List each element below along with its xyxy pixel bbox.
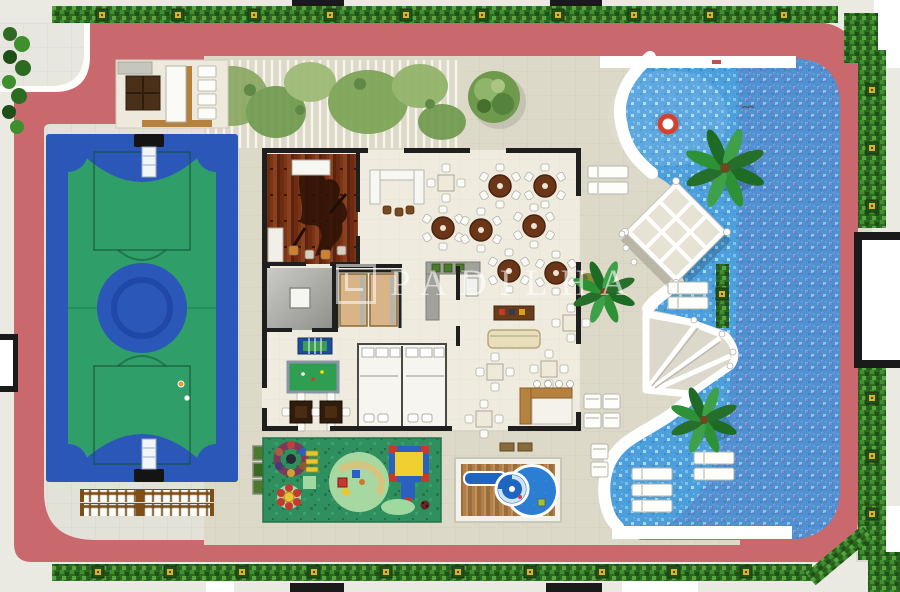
- carousel: [275, 441, 307, 477]
- pool-top-rim: [600, 56, 796, 68]
- pub-wood-lounge: [266, 154, 358, 264]
- pool-bottom-rim: [612, 526, 792, 539]
- right-notch: [854, 232, 900, 368]
- climbing-bars: [306, 451, 318, 472]
- life-ring: [656, 112, 680, 136]
- clubhouse-building: [262, 148, 590, 438]
- playground: [263, 438, 441, 522]
- foosball-table: [298, 338, 332, 354]
- floor-plan-drawing: [0, 0, 900, 592]
- play-circle: [329, 452, 389, 512]
- sports-court: [46, 134, 238, 482]
- grill-table: [126, 76, 160, 110]
- billiards-table: [288, 362, 338, 392]
- spiral-slide: [496, 473, 528, 505]
- ladybug-toy: [421, 501, 430, 510]
- fitness-room: [266, 268, 332, 330]
- floor-plan-canvas: PADILHA: [0, 0, 900, 592]
- grill-room: [116, 60, 228, 128]
- restrooms: [358, 344, 446, 428]
- left-notch: [0, 334, 18, 392]
- kids-pool: [455, 458, 561, 522]
